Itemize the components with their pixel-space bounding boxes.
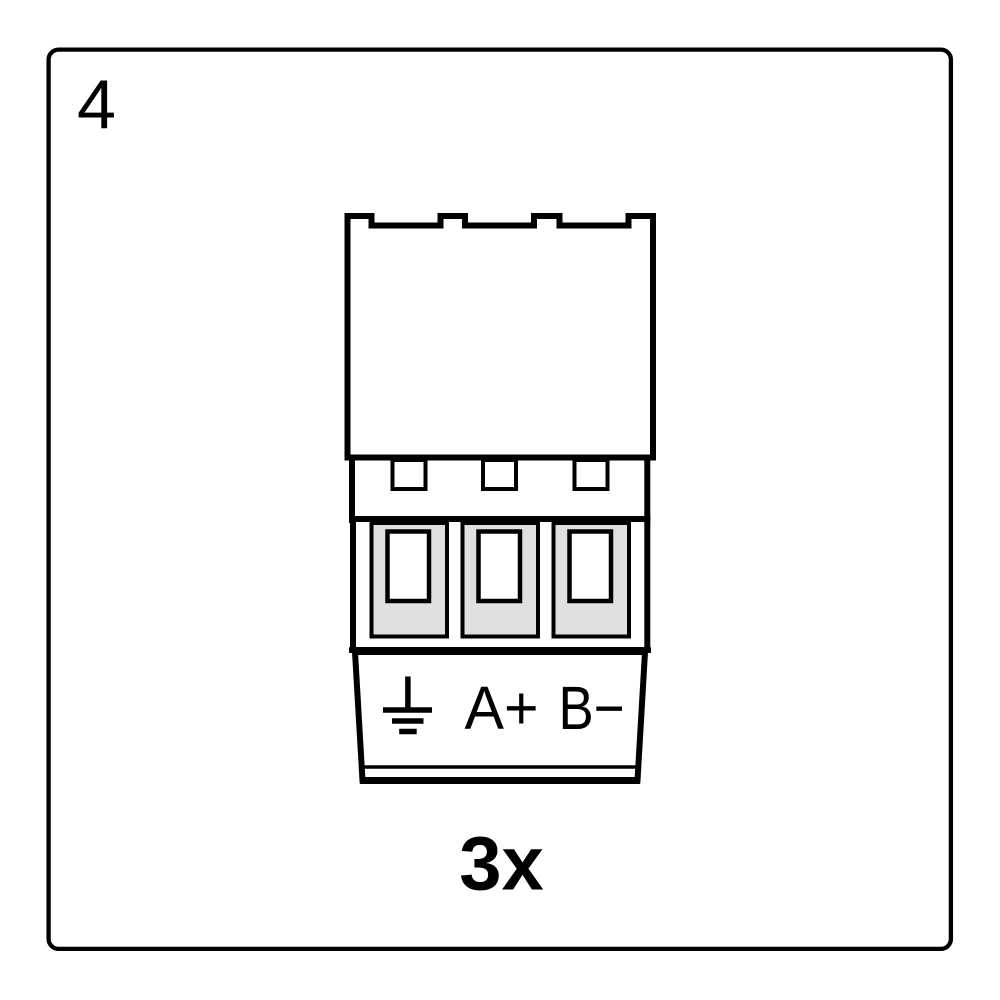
svg-text:A+: A+: [465, 674, 539, 742]
svg-text:3x: 3x: [459, 822, 544, 907]
svg-text:B−: B−: [559, 674, 625, 742]
svg-text:4: 4: [77, 66, 116, 144]
